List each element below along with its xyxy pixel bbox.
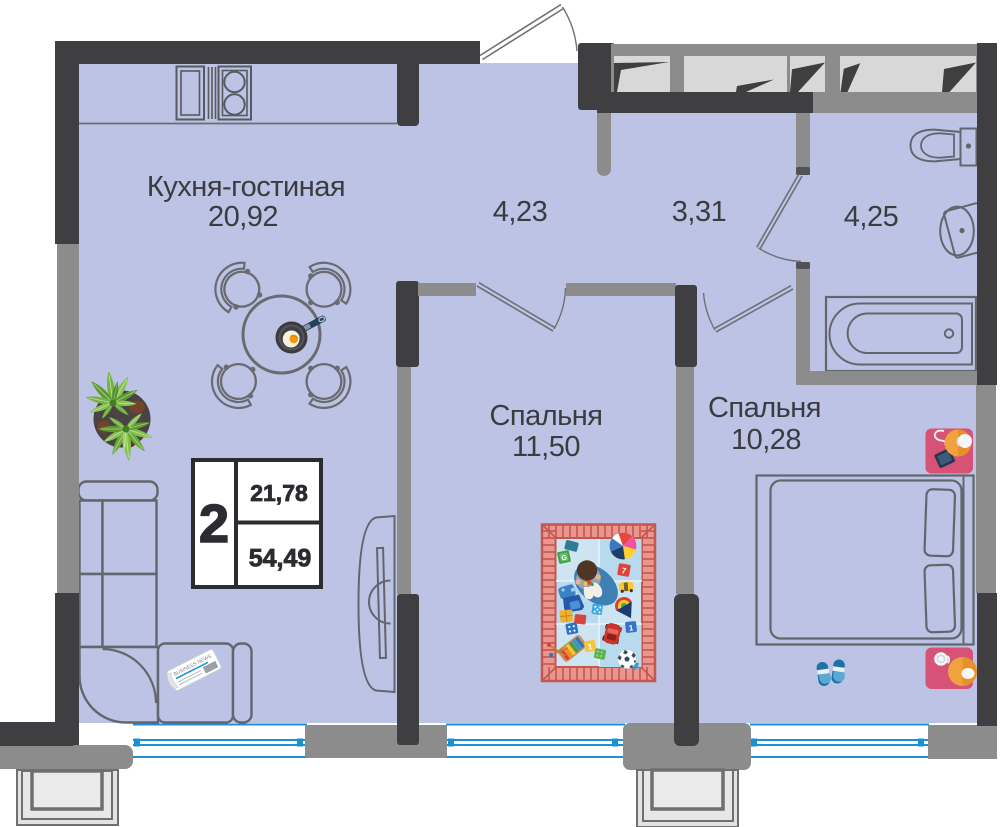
svg-text:2: 2 [199,494,229,554]
svg-text:20,92: 20,92 [208,201,278,233]
svg-text:21,78: 21,78 [250,480,308,506]
svg-text:4,25: 4,25 [844,201,898,233]
svg-text:4,23: 4,23 [493,196,547,228]
svg-text:Спальня: Спальня [489,400,602,432]
svg-text:Кухня-гостиная: Кухня-гостиная [147,171,345,203]
svg-text:54,49: 54,49 [249,545,312,573]
svg-text:Спальня: Спальня [708,392,821,424]
svg-text:11,50: 11,50 [512,431,580,463]
svg-text:10,28: 10,28 [731,424,801,456]
svg-text:3,31: 3,31 [672,196,726,228]
